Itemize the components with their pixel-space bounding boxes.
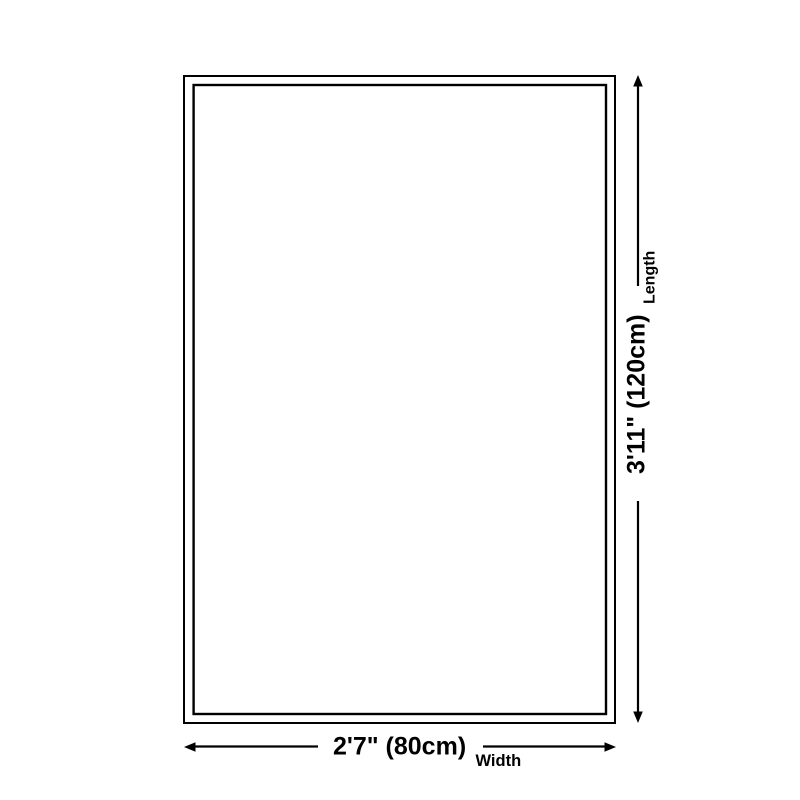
svg-text:Length: Length — [642, 251, 659, 304]
svg-text:3'11" (120cm): 3'11" (120cm) — [623, 314, 651, 474]
svg-text:Width: Width — [476, 752, 522, 770]
svg-text:2'7" (80cm): 2'7" (80cm) — [333, 733, 466, 761]
